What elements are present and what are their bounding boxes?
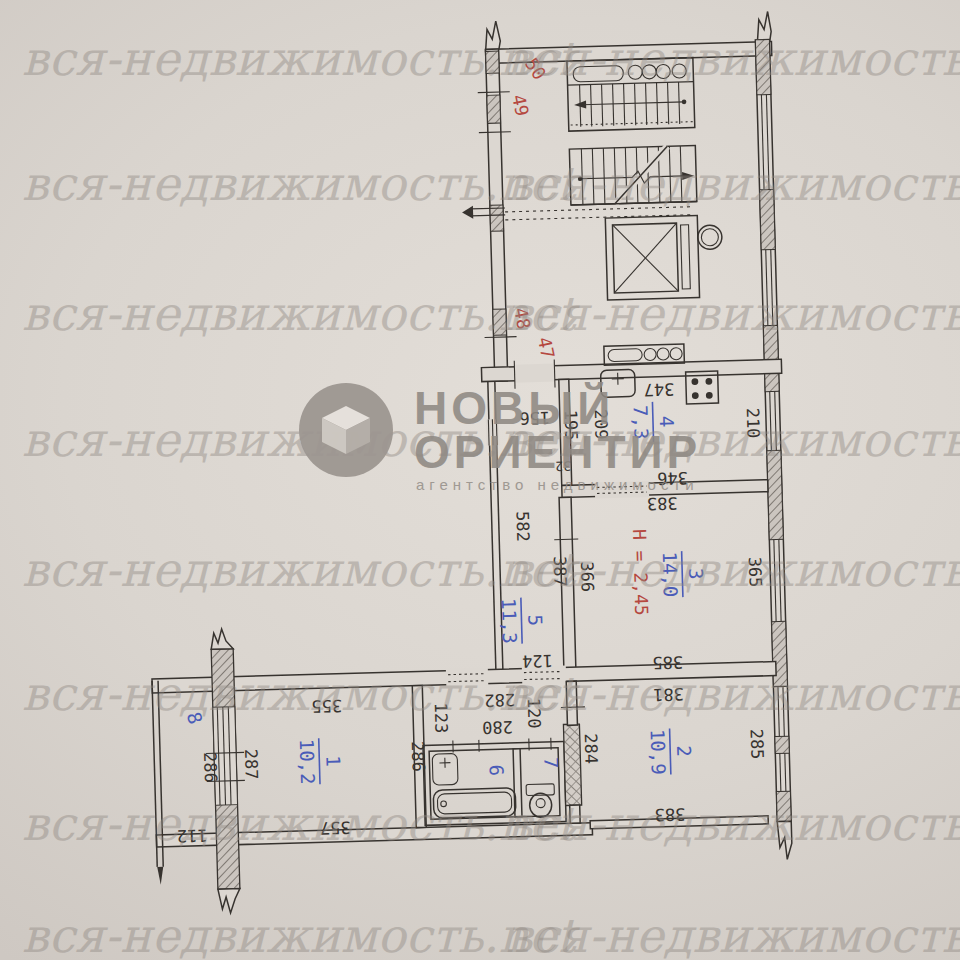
watermark-text: вся-недвижимость.net bbox=[22, 666, 581, 721]
logo-title-line2: ОРИЕНТИР bbox=[414, 426, 701, 478]
garbage-chute-inner bbox=[701, 228, 718, 245]
room-label-6: 6 bbox=[486, 764, 508, 776]
dim-tick bbox=[479, 132, 511, 133]
dimension-label: 286 bbox=[200, 752, 221, 783]
watermark-text: вся-недвижимость.net bbox=[22, 156, 581, 211]
dimension-label: 383 bbox=[647, 493, 678, 514]
watermark-text: вся-недвижимость.net bbox=[22, 796, 581, 851]
dimension-label: 286 bbox=[408, 741, 429, 772]
entry-door-opening bbox=[514, 364, 554, 383]
dimension-label: 285 bbox=[747, 728, 768, 759]
watermark-text: вся-недвижимость.net bbox=[506, 31, 960, 86]
room-label-2: 2 10,9 bbox=[647, 728, 696, 775]
watermark-text: вся-недвижимость.net bbox=[22, 31, 581, 86]
dim-tick bbox=[478, 92, 510, 93]
dimension-label: 287 bbox=[241, 749, 262, 780]
watermark-text: вся-недвижимость.net bbox=[506, 796, 960, 851]
agency-logo: НОВЫЙ ОРИЕНТИР агентство недвижимости bbox=[299, 382, 701, 493]
room-number: 1 bbox=[322, 755, 344, 767]
dimension-label: 284 bbox=[581, 733, 602, 764]
watermark-text: вся-недвижимость.net bbox=[506, 666, 960, 721]
dimension-label: 582 bbox=[512, 511, 533, 542]
elevator-counterweight bbox=[681, 225, 691, 289]
landing-dashed-line bbox=[505, 215, 693, 220]
watermark-text: вся-недвижимость.net bbox=[506, 156, 960, 211]
room-number: 2 bbox=[673, 745, 695, 757]
watermark-text: вся-недвижимость.net bbox=[22, 542, 581, 597]
dimension-label: 347 bbox=[643, 379, 674, 400]
vent-shaft bbox=[563, 724, 581, 805]
room-label-1: 1 10,2 bbox=[296, 738, 345, 785]
wall-pier bbox=[487, 95, 501, 123]
storey-mark: 49 bbox=[508, 93, 533, 118]
logo-subtitle: агентство недвижимости bbox=[416, 476, 699, 493]
room-number: 5 bbox=[524, 614, 546, 626]
watermark-text: вся-недвижимость.net bbox=[22, 908, 581, 960]
bath-sink bbox=[432, 753, 458, 785]
room-label-7: 7 bbox=[540, 757, 562, 769]
room-area: 10,9 bbox=[647, 729, 670, 775]
watermark-text: вся-недвижимость.net bbox=[506, 908, 960, 960]
wall-break-balcony bbox=[157, 867, 164, 885]
dim-tick bbox=[554, 539, 578, 540]
watermark-text: вся-недвижимость.net bbox=[506, 286, 960, 341]
room-area: 11,3 bbox=[498, 598, 521, 644]
watermark-text: вся-недвижимость.net bbox=[22, 286, 581, 341]
watermark-text: вся-недвижимость.net bbox=[506, 542, 960, 597]
room-area: 10,2 bbox=[296, 738, 319, 784]
room-label-5: 5 11,3 bbox=[498, 597, 547, 644]
floorplan-photo: 347 346 210 209 195 156 32 383 385 365 3… bbox=[0, 0, 960, 960]
